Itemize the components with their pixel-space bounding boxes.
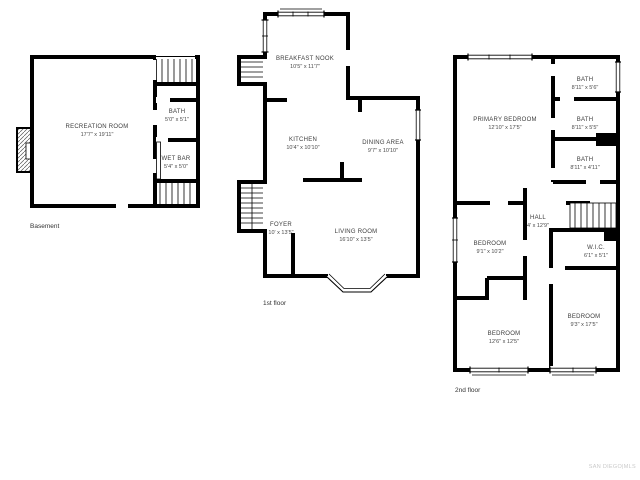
room-label-bath-3: BATH 8'11" x 4'11": [555, 156, 615, 173]
mls-watermark: SAN DIEGO|MLS: [576, 464, 636, 470]
room-dims: 12'6" x 12'5": [464, 339, 544, 346]
room-dims: 9'1" x 10'2": [450, 249, 530, 256]
room-name: BATH: [555, 76, 615, 84]
room-label-living-room: LIVING ROOM 16'10" x 13'5": [311, 228, 401, 245]
room-name: KITCHEN: [258, 136, 348, 144]
room-dims: 10'5" x 11'7": [260, 64, 350, 71]
room-name: DINING AREA: [343, 139, 423, 147]
room-label-bath-1: BATH 8'11" x 5'6": [555, 76, 615, 93]
room-dims: 8'11" x 5'6": [555, 85, 615, 92]
room-dims: 12'10" x 17'5": [455, 125, 555, 132]
page: { "watermark": "SAN DIEGO|MLS", "basemen…: [0, 0, 640, 480]
room-dims: 5'0" x 5'1": [152, 117, 202, 124]
room-name: BEDROOM: [464, 330, 544, 338]
room-label-wet-bar: WET BAR 5'4" x 5'0": [151, 155, 201, 172]
room-name: BEDROOM: [544, 313, 624, 321]
room-name: W.I.C.: [566, 244, 626, 252]
room-dims: 4' x 12'9": [508, 223, 568, 230]
room-name: BATH: [555, 116, 615, 124]
room-name: BATH: [152, 108, 202, 116]
room-label-bath-2: BATH 8'11" x 5'5": [555, 116, 615, 133]
basement-floor-label: Basement: [30, 223, 59, 230]
room-dims: 10' x 13'5": [251, 230, 311, 237]
room-dims: 10'4" x 10'10": [258, 145, 348, 152]
room-dims: 8'11" x 5'5": [555, 125, 615, 132]
room-label-bedroom-3: BEDROOM 12'6" x 12'5": [464, 330, 544, 347]
room-name: LIVING ROOM: [311, 228, 401, 236]
room-name: HALL: [508, 214, 568, 222]
first-floor-label: 1st floor: [263, 300, 286, 307]
room-name: WET BAR: [151, 155, 201, 163]
room-label-breakfast-nook: BREAKFAST NOOK 10'5" x 11'7": [260, 55, 350, 72]
room-dims: 9'3" x 17'5": [544, 322, 624, 329]
room-name: BATH: [555, 156, 615, 164]
room-dims: 9'7" x 10'10": [343, 148, 423, 155]
room-dims: 5'4" x 5'0": [151, 164, 201, 171]
room-name: FOYER: [251, 221, 311, 229]
room-label-kitchen: KITCHEN 10'4" x 10'10": [258, 136, 348, 153]
room-label-basement-bath: BATH 5'0" x 5'1": [152, 108, 202, 125]
room-label-wic: W.I.C. 6'1" x 5'1": [566, 244, 626, 261]
room-label-recreation-room: RECREATION ROOM 17'7" x 19'11": [52, 123, 142, 140]
room-label-primary-bedroom: PRIMARY BEDROOM 12'10" x 17'5": [455, 116, 555, 133]
second-floor-label: 2nd floor: [455, 387, 480, 394]
room-name: RECREATION ROOM: [52, 123, 142, 131]
room-name: BREAKFAST NOOK: [260, 55, 350, 63]
room-label-dining-area: DINING AREA 9'7" x 10'10": [343, 139, 423, 156]
room-label-bedroom-2: BEDROOM 9'3" x 17'5": [544, 313, 624, 330]
room-dims: 16'10" x 13'5": [311, 237, 401, 244]
room-dims: 17'7" x 19'11": [52, 132, 142, 139]
room-label-hall: HALL 4' x 12'9": [508, 214, 568, 231]
room-name: BEDROOM: [450, 240, 530, 248]
room-name: PRIMARY BEDROOM: [455, 116, 555, 124]
room-dims: 8'11" x 4'11": [555, 165, 615, 172]
room-label-foyer: FOYER 10' x 13'5": [251, 221, 311, 238]
room-label-bedroom-1: BEDROOM 9'1" x 10'2": [450, 240, 530, 257]
room-dims: 6'1" x 5'1": [566, 253, 626, 260]
